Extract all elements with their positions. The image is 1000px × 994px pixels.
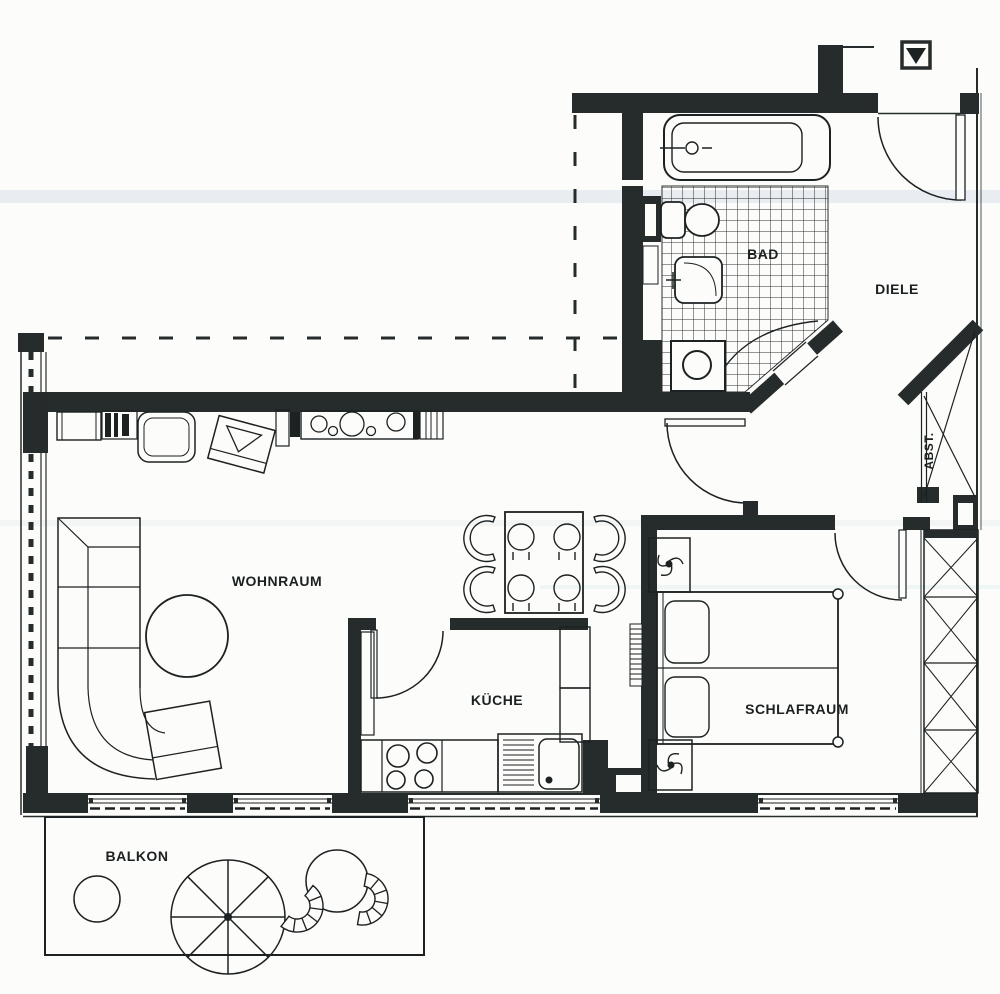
room-label-wohnraum: WOHNRAUM [232,573,322,589]
entrance-marker-icon [902,42,930,68]
radiator-symbol [630,624,642,686]
bathtub-symbol [660,115,830,180]
paper-background [0,0,1000,994]
window-living-2 [233,795,332,813]
wall-kitchen-top [450,618,588,630]
bath-shelf [643,246,658,284]
wall-west-cap-top [18,333,44,352]
wall-west-mid [23,392,48,453]
room-label-kueche: KÜCHE [471,692,523,708]
wall-west-cap-bottom [26,746,48,795]
wall-bath-left [622,112,643,392]
sink-symbol [666,257,722,303]
floor-plan-sheet: WOHNRAUM KÜCHE SCHLAFRAUM BAD DIELE ABST… [0,0,1000,994]
patio-umbrella-table-symbol [171,860,285,974]
window-kitchen [408,795,600,813]
room-label-bad: BAD [747,246,779,262]
wall-kitchen-left [348,618,361,795]
washing-machine-symbol [640,340,725,392]
kitchen-wall-column [583,740,608,795]
wall-abst-cap [917,487,939,503]
window-living-1 [88,795,187,813]
wall-top [572,93,878,113]
floor-plan-drawing: WOHNRAUM KÜCHE SCHLAFRAUM BAD DIELE ABST… [0,0,1000,994]
room-label-balkon: BALKON [106,848,169,864]
window-bedroom [758,795,898,813]
room-label-abstellraum: ABST. [922,432,936,469]
door-stop-post [743,501,758,517]
room-label-diele: DIELE [875,281,919,297]
wall-bedroom-top-left [641,515,835,530]
wall-living-north [23,392,750,412]
room-label-schlafraum: SCHLAFRAUM [745,701,849,717]
wall-bedroom-top-right [903,517,930,530]
wall-top-stub [818,45,843,95]
